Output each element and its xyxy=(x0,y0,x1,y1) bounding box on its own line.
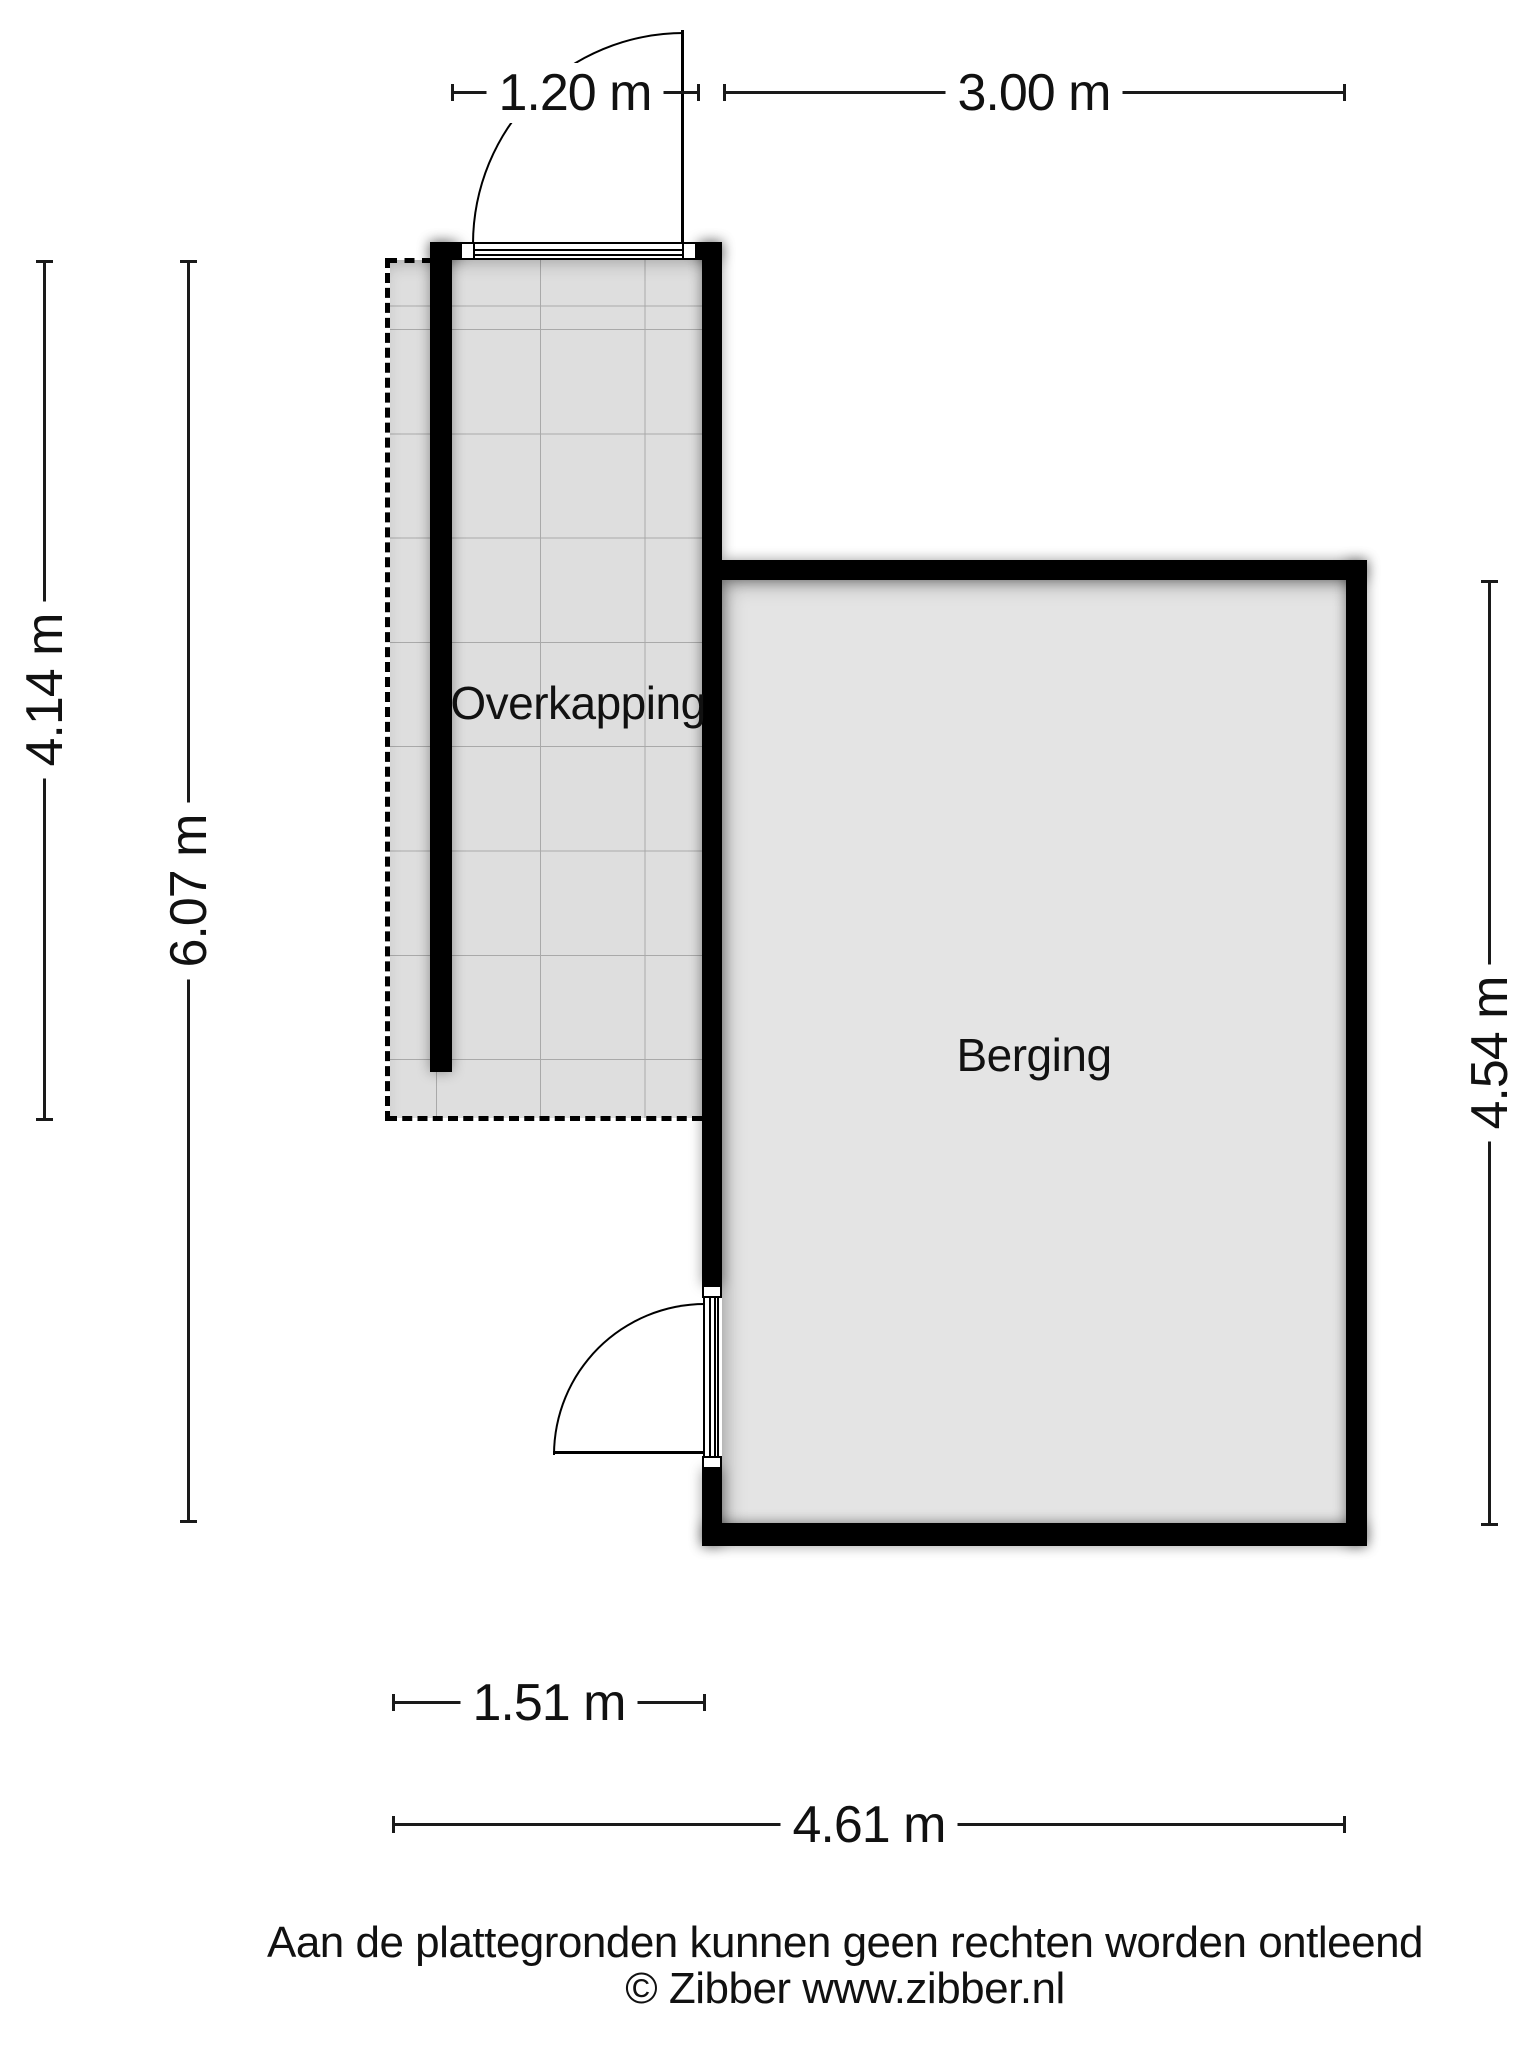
berging-door-swing-arc xyxy=(553,1303,705,1455)
overkapping-top-wall-left xyxy=(430,242,460,260)
berging-door-jamb-top xyxy=(702,1285,722,1298)
berging-right-wall xyxy=(1346,560,1367,1546)
dim-tick xyxy=(1481,580,1498,583)
top-door-leaf xyxy=(681,30,684,242)
dim-tick xyxy=(36,1118,53,1121)
overkapping-inner-wall xyxy=(430,242,452,1072)
berging-door-leaf xyxy=(553,1451,703,1454)
dim-tick xyxy=(723,84,726,101)
dim-tick xyxy=(180,260,197,263)
footer: Aan de plattegronden kunnen geen rechten… xyxy=(154,1920,1536,2012)
berging-door-frame-line xyxy=(709,1298,711,1456)
dim-tick xyxy=(1481,1523,1498,1526)
top-door-frame-line xyxy=(475,249,682,251)
overkapping-dashed-border-bottom xyxy=(387,1116,702,1121)
overkapping-dashed-border-left xyxy=(385,258,390,1121)
dim-label-bottom-1: 1.51 m xyxy=(461,1673,638,1733)
top-door-jamb-left xyxy=(460,242,475,260)
room-label-overkapping: Overkapping xyxy=(450,676,705,730)
berging-door-jamb-bottom xyxy=(702,1456,722,1469)
dim-tick xyxy=(451,84,454,101)
overkapping-dashed-border-top xyxy=(387,258,432,263)
dim-tick xyxy=(1343,1816,1346,1833)
dim-label-bottom-2: 4.61 m xyxy=(781,1795,958,1855)
top-door-jamb-right xyxy=(682,242,697,260)
berging-bottom-wall xyxy=(702,1523,1367,1546)
berging-door-frame-line xyxy=(714,1298,716,1456)
dim-tick xyxy=(180,1520,197,1523)
room-label-berging: Berging xyxy=(956,1028,1111,1082)
footer-disclaimer: Aan de plattegronden kunnen geen rechten… xyxy=(154,1920,1536,1966)
berging-left-wall-upper xyxy=(702,242,722,1285)
dim-tick xyxy=(392,1694,395,1711)
berging-top-wall xyxy=(722,560,1367,580)
dim-tick xyxy=(697,84,700,101)
top-door-frame xyxy=(475,242,682,260)
dim-label-left-1: 4.14 m xyxy=(15,602,75,779)
berging-door-frame xyxy=(703,1298,719,1456)
top-door-frame-line xyxy=(475,254,682,256)
dim-tick xyxy=(392,1816,395,1833)
dim-label-left-2: 6.07 m xyxy=(159,803,219,980)
footer-copyright: © Zibber www.zibber.nl xyxy=(154,1966,1536,2012)
dim-label-right-1: 4.54 m xyxy=(1460,965,1520,1142)
dim-label-top-1: 1.20 m xyxy=(487,63,664,123)
dim-tick xyxy=(703,1694,706,1711)
dim-tick xyxy=(36,260,53,263)
dim-tick xyxy=(1343,84,1346,101)
dim-label-top-2: 3.00 m xyxy=(946,63,1123,123)
floorplan-canvas: Overkapping Berging 1.20 m 3.00 m 4.14 m… xyxy=(0,0,1536,2048)
